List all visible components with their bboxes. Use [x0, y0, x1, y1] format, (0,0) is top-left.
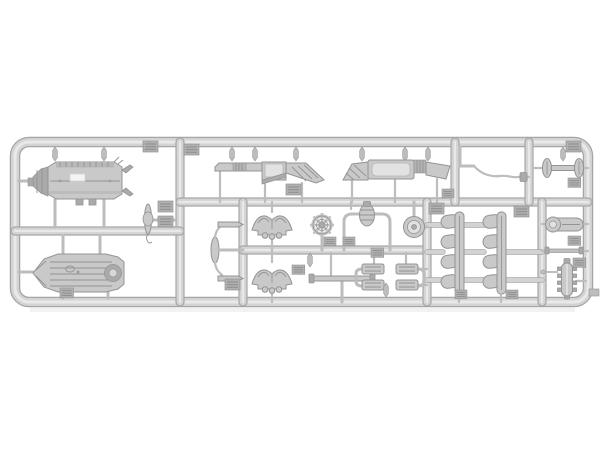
molding-tag	[514, 206, 529, 217]
part-manifold-left	[440, 212, 464, 302]
part-fender-right	[343, 147, 450, 202]
part-pump-blocks-right	[396, 253, 427, 290]
part-manifold-right	[482, 212, 506, 302]
manifold-stub-rails	[427, 225, 542, 280]
part-bent-rod	[460, 147, 529, 182]
part-end-cylinder	[542, 217, 588, 232]
molding-tag	[573, 258, 586, 267]
molding-tag	[343, 237, 355, 246]
molding-tag	[158, 201, 173, 212]
molding-tag	[292, 265, 305, 274]
molding-tag	[568, 236, 581, 245]
molding-tag	[455, 290, 467, 299]
molding-tag	[371, 248, 384, 257]
part-tank-top	[19, 147, 133, 227]
part-bracket-upper	[252, 202, 292, 250]
part-pump-blocks-left	[356, 253, 384, 290]
molding-tag	[566, 141, 581, 152]
part-fender-left	[215, 147, 324, 202]
part-link-arms	[211, 222, 243, 281]
molding-tag	[158, 216, 173, 227]
molding-tag	[429, 203, 444, 214]
molding-tag	[286, 184, 301, 195]
sprue-photo	[0, 0, 600, 450]
sprue-illustration	[0, 0, 600, 450]
part-flat-bar	[309, 253, 375, 302]
molding-tag	[442, 189, 454, 198]
part-bracket-lower	[252, 250, 292, 302]
molding-tag	[184, 144, 199, 155]
molding-tag	[324, 237, 336, 246]
part-thin-rod	[542, 247, 588, 254]
molding-tag	[143, 141, 158, 152]
molding-tag	[506, 290, 518, 299]
molding-tag	[225, 279, 240, 290]
molding-tag	[60, 288, 74, 298]
tank-light-patch	[70, 174, 85, 181]
frame-side-tab	[589, 289, 599, 296]
molding-tag	[568, 178, 581, 187]
